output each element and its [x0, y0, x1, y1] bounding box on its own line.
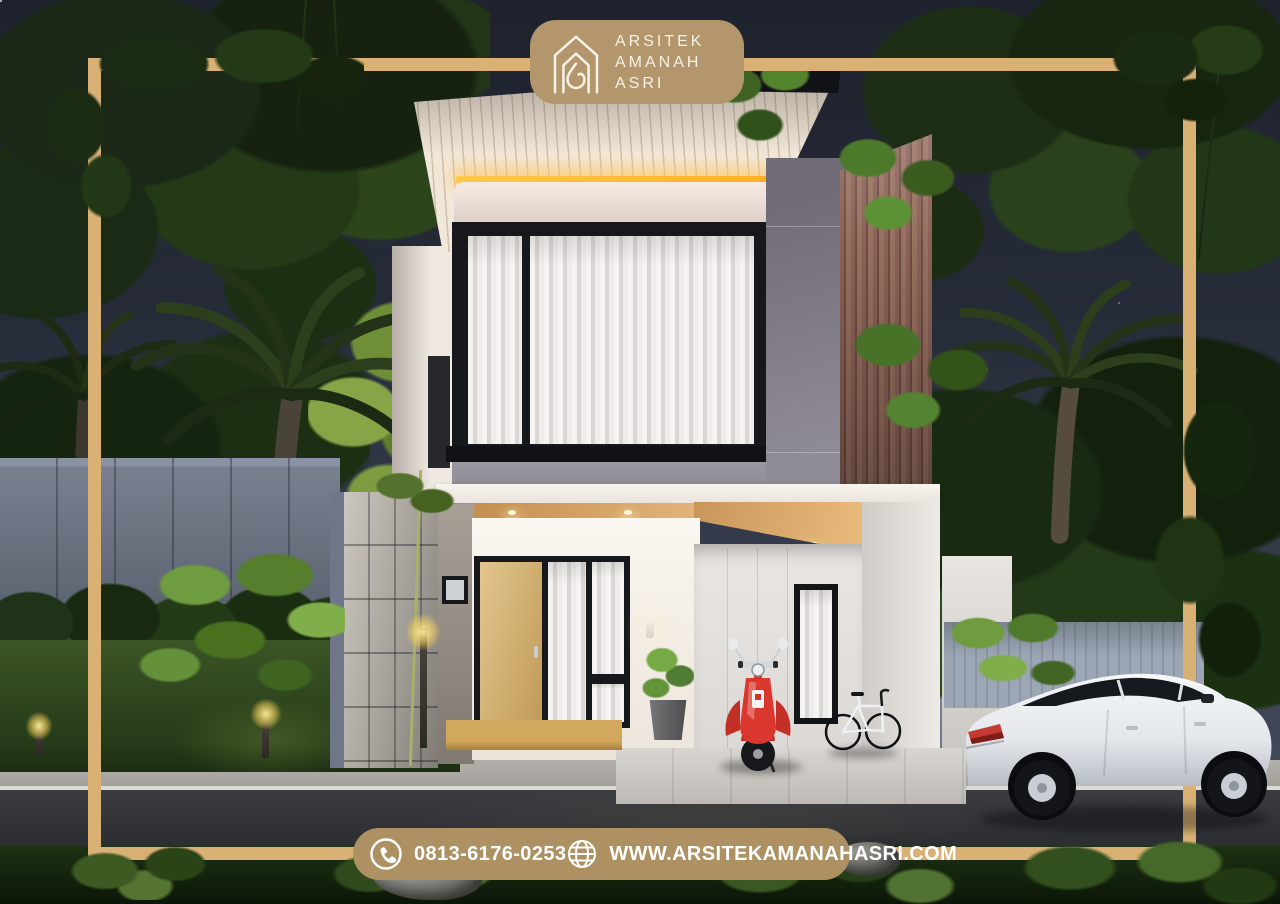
bollard-glow [20, 706, 58, 746]
website-url: WWW.ARSITEKAMANAHASRI.COM [609, 843, 957, 866]
white-sedan-car [958, 636, 1280, 832]
brand-house-icon [550, 30, 602, 94]
foliage-over-frame-top-right [1086, 8, 1280, 138]
website-group: WWW.ARSITEKAMANAHASRI.COM [566, 838, 957, 870]
brand-badge: ARSITEK AMANAH ASRI [530, 20, 744, 104]
phone-icon [369, 837, 403, 871]
phone-number: 0813-6176-0253 [414, 843, 566, 866]
foliage-over-frame-left [36, 56, 146, 226]
brand-name: ARSITEK AMANAH ASRI [615, 31, 704, 94]
phone-group: 0813-6176-0253 [369, 837, 566, 871]
poster-canvas: ARSITEK AMANAH ASRI 0813-6176-0253 WWW.A… [0, 0, 1280, 904]
brand-name-line-3: ASRI [615, 73, 704, 94]
contact-bar: 0813-6176-0253 WWW.ARSITEKAMANAHASRI.COM [353, 828, 850, 880]
brand-name-line-2: AMANAH [615, 52, 704, 73]
grass-tuft [990, 828, 1280, 904]
grass-tuft [55, 836, 235, 900]
globe-icon [566, 838, 598, 870]
brand-name-line-1: ARSITEK [615, 31, 704, 52]
